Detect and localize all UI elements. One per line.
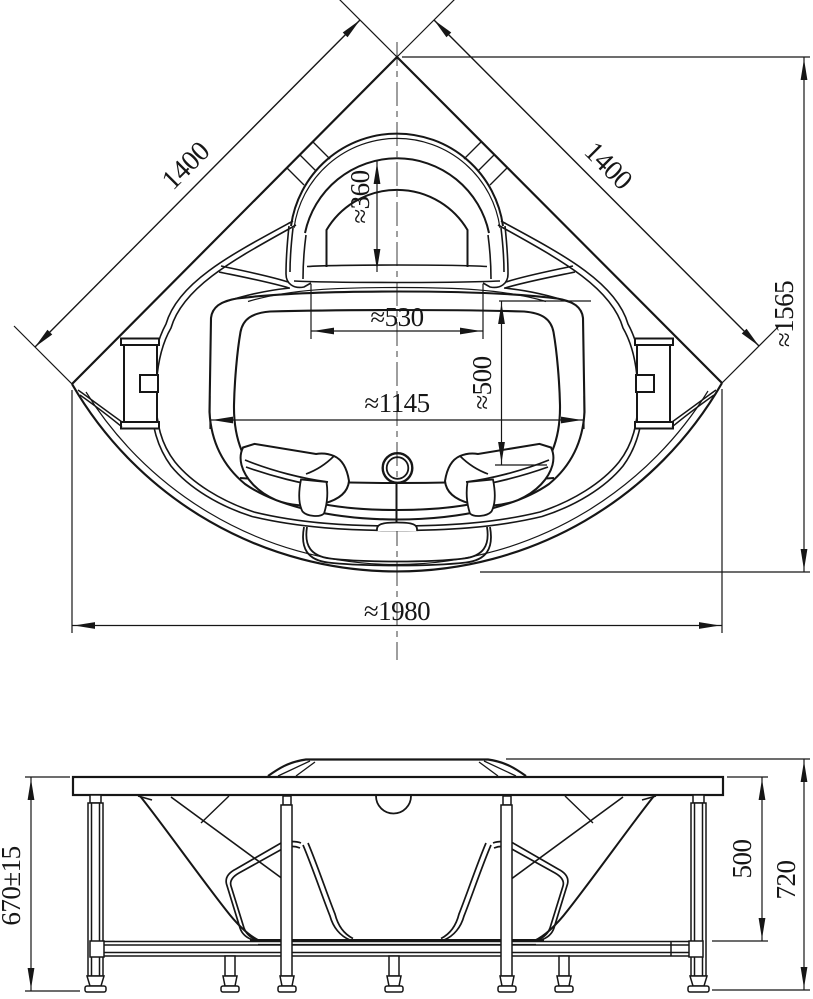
svg-text:500: 500 [727,840,757,879]
svg-text:≈530: ≈530 [370,302,423,332]
svg-text:≈1980: ≈1980 [364,596,430,626]
svg-text:≈360: ≈360 [345,170,375,223]
svg-text:≈500: ≈500 [467,356,497,409]
svg-text:≈1145: ≈1145 [364,388,429,418]
svg-text:670±15: 670±15 [0,846,26,925]
svg-text:≈1565: ≈1565 [769,281,799,347]
svg-text:720: 720 [771,861,801,900]
